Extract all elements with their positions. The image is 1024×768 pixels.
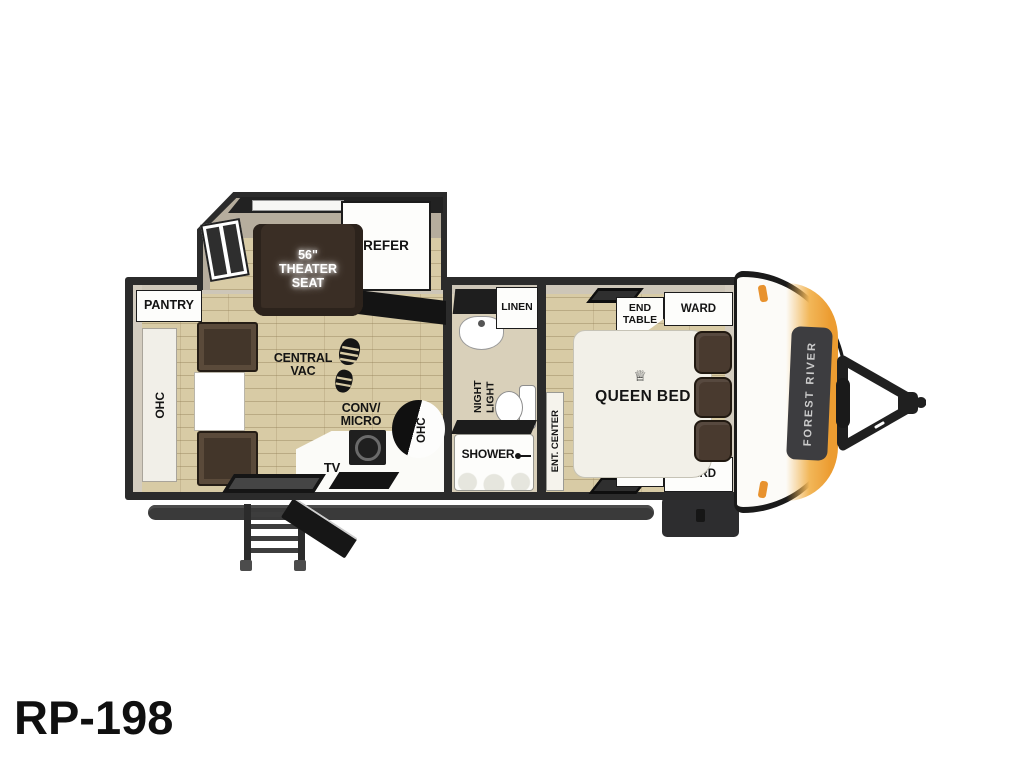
central-vac-label: CENTRAL VAC [272, 351, 334, 379]
pantry-cabinet: PANTRY [136, 290, 202, 322]
front-decal-label: FOREST RIVER [801, 341, 818, 447]
ward-top-label: WARD [681, 303, 716, 315]
dinette-table [194, 372, 245, 431]
entry-step-well [222, 474, 326, 493]
end-table-top-label: END TABLE [623, 303, 657, 325]
toilet-bowl [495, 391, 523, 424]
pantry-label: PANTRY [144, 299, 194, 312]
shower-label: SHOWER [459, 447, 517, 462]
frame-rail [148, 505, 654, 520]
bath-wall-right [537, 285, 546, 492]
front-decal-badge: FOREST RIVER [786, 326, 833, 461]
model-label: RP-198 [14, 690, 173, 745]
window-pane-right [223, 224, 244, 274]
entertainment-center: ENT. CENTER [546, 392, 564, 491]
crown-icon: ♕ [625, 369, 655, 385]
bed-pillow-1 [694, 331, 732, 374]
tongue-hitch [836, 348, 926, 458]
bath-faucet [478, 320, 485, 327]
theater-seat-label: 56" THEATER SEAT [279, 249, 337, 290]
queen-bed-label: QUEEN BED [577, 388, 709, 406]
floorplan-canvas: RP-198 PANTRY OHC CENTRAL VAC [0, 0, 1024, 768]
conv-micro-label: CONV/ MICRO [328, 401, 394, 429]
shower-head-icon [514, 449, 532, 463]
bed-pillow-3 [694, 420, 732, 462]
storage-box-handle [696, 509, 705, 522]
ent-center-label: ENT. CENTER [550, 410, 561, 472]
storage-box [662, 497, 739, 537]
rear-ohc-label: OHC [153, 392, 167, 419]
theater-seat: 56" THEATER SEAT [253, 224, 363, 316]
shower-rod [451, 420, 537, 434]
cooktop-burner [355, 435, 381, 461]
linen-label: LINEN [501, 302, 533, 313]
bed-pillow-2 [694, 377, 732, 418]
dinette-bench-top [197, 322, 258, 372]
refer-label: REFER [363, 239, 409, 253]
rear-overhead-cabinet: OHC [142, 328, 177, 482]
entry-mat [329, 472, 400, 489]
skylight [252, 200, 344, 211]
wardrobe-top: WARD [664, 292, 733, 326]
counter-end-ohc-label: OHC [416, 408, 436, 452]
cooktop [349, 430, 386, 465]
linen-cabinet: LINEN [496, 287, 538, 329]
